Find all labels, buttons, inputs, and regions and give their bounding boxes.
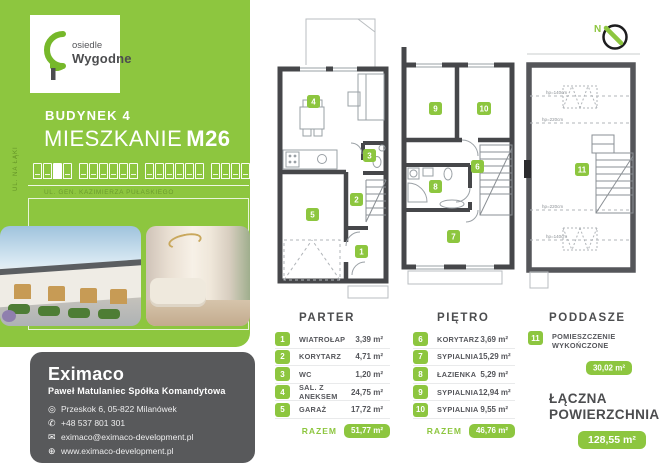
building-unit-cell [119, 163, 128, 179]
logo-leaf-icon [38, 26, 68, 87]
table-row: 5 GARAŻ 17,72 m² [275, 401, 390, 419]
room-label: ŁAZIENKA [437, 370, 480, 379]
photo-garage-door [80, 288, 97, 303]
plan-badge-room-2: 2 [354, 196, 359, 205]
contact-email: eximaco@eximaco-development.pl [61, 432, 193, 442]
building-unit-cell [99, 163, 108, 179]
room-area: 5,29 m² [480, 370, 515, 379]
photo-sofa [150, 278, 206, 304]
flyer-page: osiedle Wygodne UL. NA ŁĄKI BUDYNEK 4 MI… [0, 0, 660, 466]
table-total-row: RAZEM 46,76 m² [413, 424, 515, 438]
room-number-badge: 1 [275, 332, 290, 346]
plan-badge-room-8: 8 [433, 183, 438, 192]
contact-website: www.eximaco-development.pl [61, 446, 173, 456]
plan-badge-room-9: 9 [433, 105, 438, 114]
phone-icon: ✆ [48, 418, 61, 429]
attic-area-wrap: 30,02 m² [528, 358, 632, 376]
plan-badge-room-1: 1 [359, 248, 364, 257]
photo-garage-door [14, 284, 31, 299]
contact-address: Przeskok 6, 05-822 Milanówek [61, 404, 177, 414]
hp-annotation-top-1: hp=140cm [546, 90, 567, 95]
room-label: WIATROŁAP [299, 335, 355, 344]
room-number-badge: 8 [413, 367, 428, 381]
room-number-badge: 3 [275, 367, 290, 381]
room-number-badge: 11 [528, 331, 543, 345]
room-number-badge: 4 [275, 385, 290, 399]
total-label: RAZEM [302, 426, 337, 436]
floor-plan-poddasze: N hp=140cm hp=220cm hp=220cm hp=140cm [518, 10, 648, 292]
room-area: 15,29 m² [479, 352, 518, 361]
street-divider-line [28, 185, 249, 186]
logo-line2: Wygodne [72, 51, 132, 66]
table-pietro-header: PIĘTRO [437, 312, 515, 324]
room-area: 3,39 m² [355, 335, 390, 344]
room-area: 24,75 m² [351, 388, 390, 397]
room-label: SYPIALNIA [437, 388, 479, 397]
location-icon: ◎ [48, 404, 61, 415]
company-subtitle: Paweł Matulaniec Spółka Komandytowa [48, 386, 226, 396]
plan-badge-room-3: 3 [367, 152, 372, 161]
summary-title: ŁĄCZNA POWIERZCHNIA [549, 391, 660, 422]
floor-plan-parter: 4 3 2 5 1 [270, 10, 395, 302]
room-label: POMIESZCZENIE WYKOŃCZONE [552, 332, 632, 351]
hp-annotation-bottom-1: hp=220cm [542, 204, 563, 209]
building-unit-cell [129, 163, 138, 179]
room-label: SYPIALNIA [437, 405, 480, 414]
contact-address-row: ◎ Przeskok 6, 05-822 Milanówek [48, 402, 193, 416]
apartment-label: MIESZKANIE [44, 126, 182, 151]
contact-email-row: ✉ eximaco@eximaco-development.pl [48, 430, 193, 444]
table-poddasze-header: PODDASZE [549, 312, 632, 324]
table-row: 11 POMIESZCZENIE WYKOŃCZONE [528, 331, 632, 351]
building-unit-cell-highlighted [53, 163, 62, 179]
street-bottom-label: UL. GEN. KAZIMIERZA PUŁASKIEGO [44, 189, 174, 196]
table-parter: PARTER 1 WIATROŁAP 3,39 m² 2 KORYTARZ 4,… [275, 312, 390, 438]
table-row: 2 KORYTARZ 4,71 m² [275, 349, 390, 367]
building-unit-cell [185, 163, 194, 179]
building-unit-cell [231, 163, 240, 179]
building-block-group [79, 163, 138, 179]
attic-area-badge: 30,02 m² [586, 361, 632, 375]
table-total-row: RAZEM 51,77 m² [275, 424, 390, 438]
room-area: 17,72 m² [351, 405, 390, 414]
table-row: 4 SAL. Z ANEKSEM 24,75 m² [275, 384, 390, 402]
building-unit-cell [165, 163, 174, 179]
building-unit-cell [43, 163, 52, 179]
room-area: 12,94 m² [479, 388, 518, 397]
floor-plan-pietro: 9 10 6 8 7 [396, 40, 516, 295]
total-area-summary: ŁĄCZNA POWIERZCHNIA 128,55 m² [549, 391, 660, 449]
building-unit-cell [33, 163, 42, 179]
street-side-label: UL. NA ŁĄKI [13, 131, 19, 191]
table-parter-header: PARTER [299, 312, 390, 324]
exterior-photo [0, 226, 141, 326]
building-unit-cell [89, 163, 98, 179]
room-area: 4,71 m² [355, 352, 390, 361]
summary-value-badge: 128,55 m² [578, 431, 646, 449]
email-icon: ✉ [48, 432, 61, 443]
table-row: 6 KORYTARZ 3,69 m² [413, 331, 515, 349]
room-label: GARAŻ [299, 405, 351, 414]
contact-phone-row: ✆ +48 537 801 301 [48, 416, 193, 430]
table-row: 3 WC 1,20 m² [275, 366, 390, 384]
room-number-badge: 7 [413, 350, 428, 364]
photo-garage-door [110, 289, 127, 304]
room-label: WC [299, 370, 355, 379]
building-unit-cell [261, 163, 270, 179]
compass-north-label: N [594, 24, 601, 35]
hp-annotation-top-2: hp=220cm [542, 117, 563, 122]
logo-text: osiedle Wygodne [72, 40, 132, 87]
building-block-group [145, 163, 204, 179]
building-unit-cell [221, 163, 230, 179]
site-plan-blocks [33, 163, 270, 179]
room-area: 9,55 m² [480, 405, 515, 414]
contact-rows: ◎ Przeskok 6, 05-822 Milanówek ✆ +48 537… [48, 402, 193, 458]
table-poddasze: PODDASZE 11 POMIESZCZENIE WYKOŃCZONE 30,… [528, 312, 632, 376]
room-area: 3,69 m² [480, 335, 515, 344]
table-row: 10 SYPIALNIA 9,55 m² [413, 401, 515, 419]
room-label: KORYTARZ [299, 352, 355, 361]
photo-garage-door [48, 286, 65, 301]
apartment-title: MIESZKANIEM26 [44, 126, 231, 152]
building-block-group [33, 163, 72, 179]
plan-badge-room-5: 5 [310, 211, 315, 220]
table-row: 8 ŁAZIENKA 5,29 m² [413, 366, 515, 384]
room-label: SYPIALNIA [437, 352, 479, 361]
contact-card: Eximaco Paweł Matulaniec Spółka Komandyt… [30, 352, 255, 463]
total-label: RAZEM [427, 426, 462, 436]
table-pietro: PIĘTRO 6 KORYTARZ 3,69 m² 7 SYPIALNIA 15… [413, 312, 515, 438]
building-unit-cell [175, 163, 184, 179]
contact-phone: +48 537 801 301 [61, 418, 125, 428]
photo-hedge [38, 306, 60, 316]
building-block-group [211, 163, 270, 179]
total-area-badge: 51,77 m² [344, 424, 390, 438]
building-unit-cell [251, 163, 260, 179]
building-unit-cell [155, 163, 164, 179]
plan-badge-room-6: 6 [475, 163, 480, 172]
plan-badge-room-11: 11 [578, 166, 587, 175]
plan-badge-room-4: 4 [311, 98, 316, 107]
company-name: Eximaco [48, 364, 124, 385]
apartment-number: M26 [186, 126, 230, 151]
photo-hedge [68, 308, 90, 318]
room-label: SAL. Z ANEKSEM [299, 383, 351, 401]
building-unit-cell [63, 163, 72, 179]
room-number-badge: 10 [413, 403, 428, 417]
table-row: 1 WIATROŁAP 3,39 m² [275, 331, 390, 349]
room-number-badge: 9 [413, 385, 428, 399]
logo: osiedle Wygodne [30, 15, 120, 93]
globe-icon: ⊕ [48, 446, 61, 457]
sidebar: osiedle Wygodne UL. NA ŁĄKI BUDYNEK 4 MI… [0, 0, 250, 347]
table-row: 9 SYPIALNIA 12,94 m² [413, 384, 515, 402]
building-unit-cell [211, 163, 220, 179]
plan-badge-room-10: 10 [480, 105, 489, 114]
photo-flowers [2, 310, 16, 322]
room-number-badge: 6 [413, 332, 428, 346]
photo-hedge [98, 309, 120, 319]
interior-photo [146, 226, 250, 326]
contact-website-row: ⊕ www.eximaco-development.pl [48, 444, 193, 458]
building-unit-cell [195, 163, 204, 179]
logo-line1: osiedle [72, 40, 132, 51]
building-unit-cell [145, 163, 154, 179]
room-label: KORYTARZ [437, 335, 480, 344]
room-number-badge: 5 [275, 403, 290, 417]
room-number-badge: 2 [275, 350, 290, 364]
building-unit-cell [241, 163, 250, 179]
plan-badge-room-7: 7 [451, 233, 456, 242]
hp-annotation-bottom-2: hp=140cm [546, 234, 567, 239]
building-title: BUDYNEK 4 [45, 108, 131, 123]
total-area-badge: 46,76 m² [469, 424, 515, 438]
building-unit-cell [109, 163, 118, 179]
table-row: 7 SYPIALNIA 15,29 m² [413, 349, 515, 367]
room-area: 1,20 m² [355, 370, 390, 379]
building-unit-cell [79, 163, 88, 179]
